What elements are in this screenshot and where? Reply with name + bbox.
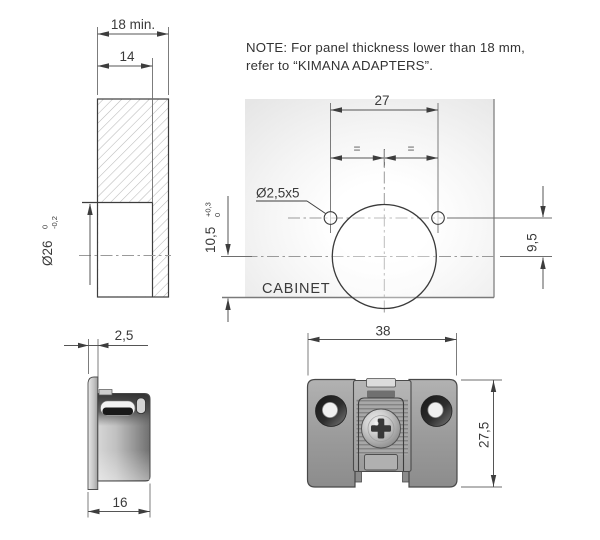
top-latch <box>367 391 395 398</box>
hinge-body-front <box>308 379 458 488</box>
left-hole <box>322 402 337 417</box>
body-depth-label: 16 <box>112 495 127 510</box>
dim-bore-diameter: Ø26 0 -0,2 <box>40 204 93 286</box>
equal-right-label: = <box>407 142 414 156</box>
screw-hole-label: Ø2,5x5 <box>256 186 300 201</box>
bore-cutout <box>98 203 152 297</box>
phillips-cross-v <box>378 419 385 439</box>
flange-profile <box>88 377 98 490</box>
hinge-height-label: 27,5 <box>477 422 492 448</box>
edge-tol-upper: +0,3 <box>204 202 213 217</box>
cup-bore-circle <box>332 205 436 309</box>
hole-depth-label: 14 <box>119 49 135 64</box>
axis-offset-label: 9,5 <box>525 233 540 252</box>
bore-tol-upper: 0 <box>41 225 50 229</box>
dim-hole-depth: 14 <box>98 49 153 69</box>
equal-left-label: = <box>353 142 360 156</box>
technical-drawing-page: NOTE: For panel thickness lower than 18 … <box>0 0 600 540</box>
hole-spacing-label: 27 <box>374 93 389 108</box>
dim-hinge-height: 27,5 <box>461 380 502 487</box>
note-block: NOTE: For panel thickness lower than 18 … <box>246 40 525 73</box>
bore-tol-lower: -0,2 <box>50 216 59 229</box>
screw-hole-left <box>324 212 337 225</box>
hinge-body-side <box>88 377 150 490</box>
edge-tol-lower: 0 <box>213 213 222 217</box>
hinge-width-label: 38 <box>375 324 390 339</box>
cabinet-label: CABINET <box>262 281 330 297</box>
hinge-drilling-drawing: NOTE: For panel thickness lower than 18 … <box>0 0 600 540</box>
screw-highlight <box>375 422 379 426</box>
top-tab <box>99 390 112 396</box>
top-clip-tab <box>367 379 396 388</box>
body-bottom-highlight <box>99 450 150 480</box>
clamp-slot-shadow <box>103 408 134 416</box>
note-line-1: NOTE: For panel thickness lower than 18 … <box>246 40 525 55</box>
dim-edge-distance: 10,5 +0,3 0 <box>203 196 252 322</box>
hinge-front-view: 38 <box>308 324 503 488</box>
drilling-pattern-view: 27 = = Ø2,5x5 <box>203 93 552 322</box>
dim-flange-thickness: 2,5 <box>64 328 148 388</box>
dim-axis-offset: 9,5 <box>525 186 546 289</box>
bottom-tab <box>365 455 398 471</box>
right-hole <box>428 402 443 417</box>
panel-thickness-label: 18 min. <box>111 17 155 32</box>
screw-hole-right <box>432 212 445 225</box>
edge-distance-label: 10,5 <box>203 227 218 253</box>
side-slot <box>137 398 146 414</box>
bore-diameter-label: Ø26 <box>40 240 55 266</box>
note-line-2: refer to “KIMANA ADAPTERS”. <box>246 58 433 73</box>
panel-section-view: 18 min. 14 Ø26 0 -0,2 <box>40 17 171 297</box>
flange-thickness-label: 2,5 <box>115 328 134 343</box>
hinge-side-view: 2,5 16 <box>64 328 150 518</box>
dim-hinge-width: 38 <box>308 324 457 376</box>
